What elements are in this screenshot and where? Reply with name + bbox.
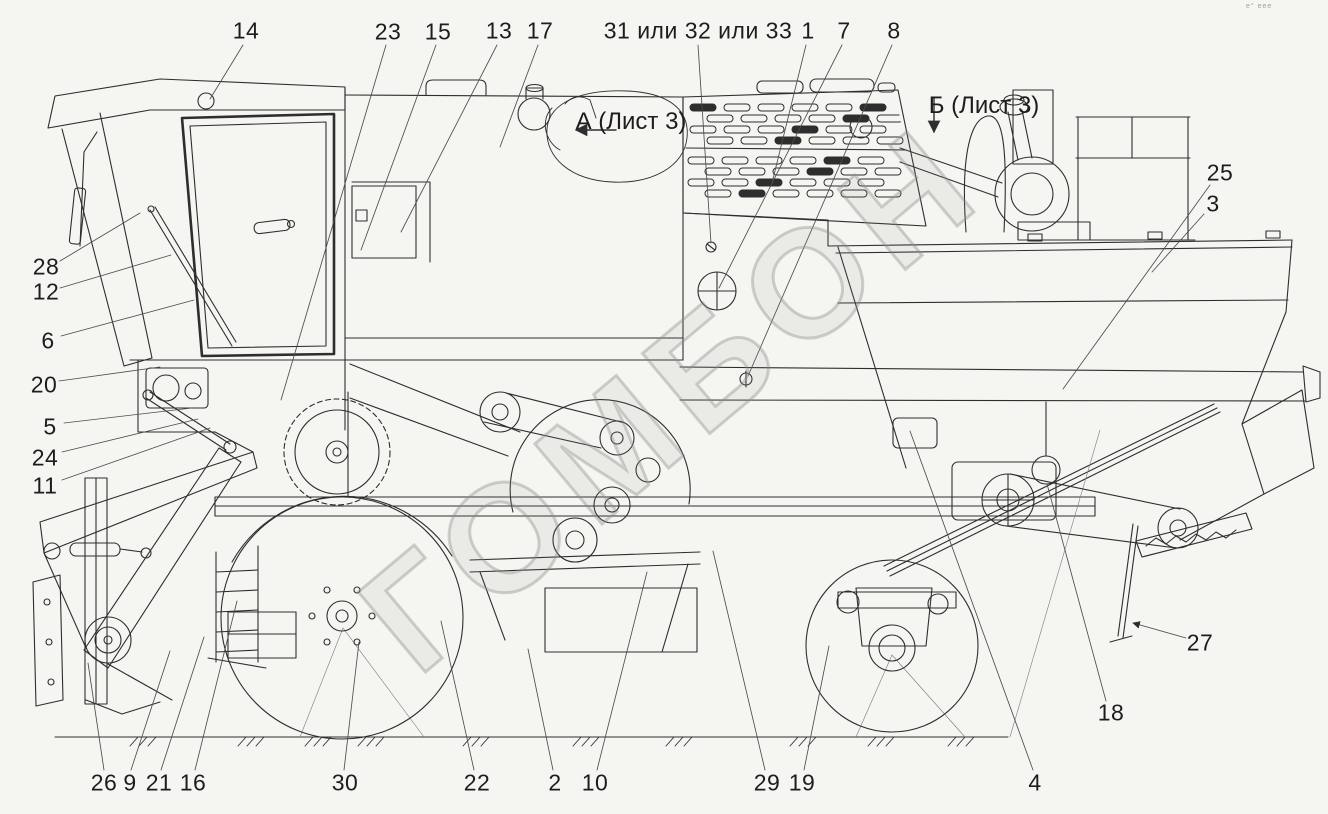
callout-28: 28: [33, 256, 60, 279]
corner-marks: е° еее: [1246, 3, 1272, 10]
header-lift: [33, 390, 257, 714]
ground-hatching: [130, 737, 974, 746]
view-a-label: А (Лист 3): [576, 110, 687, 134]
view-b-label: Б (Лист 3): [929, 94, 1040, 118]
callout-18: 18: [1098, 702, 1125, 725]
threshing-machinery: [470, 392, 1198, 652]
callout-4: 4: [1028, 772, 1041, 795]
callout-7: 7: [837, 20, 850, 43]
engine-grille: [688, 104, 903, 197]
leader-lines: [59, 45, 1210, 770]
callout-13: 13: [486, 20, 513, 43]
grain-tank: [828, 231, 1292, 468]
callout-19: 19: [789, 772, 816, 795]
engine-compartment: [683, 79, 926, 387]
callout-25: 25: [1207, 162, 1234, 185]
wheels: [221, 399, 978, 739]
callout-17: 17: [527, 20, 554, 43]
unloading-auger: [680, 366, 1320, 576]
callout-27: 27: [1187, 632, 1214, 655]
mid-body: [208, 80, 683, 668]
callout-24: 24: [32, 447, 59, 470]
view-a-balloon: [545, 91, 687, 182]
callout-15: 15: [425, 21, 452, 44]
callout-20: 20: [31, 374, 58, 397]
callout-16: 16: [180, 772, 207, 795]
cab: [48, 79, 345, 432]
callout-5: 5: [43, 416, 56, 439]
callout-21: 21: [146, 772, 173, 795]
callout-11: 11: [33, 475, 58, 498]
callout-12: 12: [33, 281, 60, 304]
callout-9: 9: [123, 772, 136, 795]
callout-23: 23: [375, 21, 402, 44]
callout-22: 22: [464, 772, 491, 795]
callout-29: 29: [754, 772, 781, 795]
callout-2: 2: [548, 772, 561, 795]
callout-8: 8: [887, 20, 900, 43]
callout-30: 30: [332, 772, 359, 795]
callout-1: 1: [801, 20, 814, 43]
platform-railing: [1018, 117, 1195, 240]
diagram-page: ГОМБОН е° еее 14 23 15 13 17 31 или 32 и…: [0, 0, 1328, 814]
callout-26: 26: [91, 772, 118, 795]
callout-10: 10: [582, 772, 609, 795]
rear-hood: [1110, 390, 1314, 642]
callout-6: 6: [41, 330, 54, 353]
callout-31-32-33: 31 или 32 или 33: [604, 20, 793, 43]
callout-14: 14: [233, 20, 260, 43]
callout-3: 3: [1206, 193, 1219, 216]
